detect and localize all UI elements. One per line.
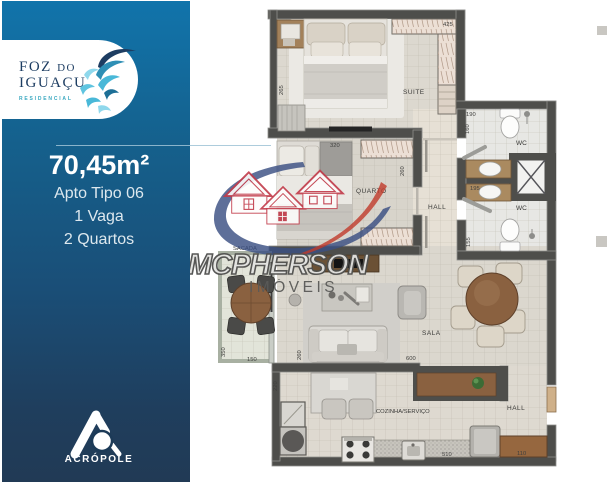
svg-text:WC: WC bbox=[516, 205, 527, 212]
svg-text:COZINHA/SERVIÇO: COZINHA/SERVIÇO bbox=[376, 409, 430, 415]
svg-text:150: 150 bbox=[247, 357, 257, 363]
svg-text:SUITE: SUITE bbox=[403, 89, 425, 96]
svg-text:110: 110 bbox=[517, 451, 526, 457]
svg-text:220: 220 bbox=[273, 381, 279, 391]
svg-text:510: 510 bbox=[442, 452, 452, 458]
svg-text:160: 160 bbox=[465, 124, 471, 134]
svg-text:155: 155 bbox=[466, 237, 472, 247]
svg-text:195: 195 bbox=[470, 186, 480, 192]
svg-text:320: 320 bbox=[330, 143, 340, 149]
svg-text:IMÓVEIS: IMÓVEIS bbox=[249, 279, 338, 296]
svg-text:600: 600 bbox=[406, 356, 416, 362]
svg-text:425: 425 bbox=[443, 22, 453, 28]
svg-text:350: 350 bbox=[221, 347, 227, 357]
svg-text:260: 260 bbox=[297, 350, 303, 360]
svg-text:SALA: SALA bbox=[422, 330, 441, 337]
svg-text:WC: WC bbox=[516, 140, 527, 147]
svg-text:HALL: HALL bbox=[428, 204, 446, 211]
svg-text:260: 260 bbox=[400, 166, 406, 176]
svg-text:MCPHERSON: MCPHERSON bbox=[188, 249, 370, 281]
svg-text:HALL: HALL bbox=[507, 405, 525, 412]
svg-text:190: 190 bbox=[466, 112, 476, 118]
svg-text:265: 265 bbox=[279, 85, 285, 95]
